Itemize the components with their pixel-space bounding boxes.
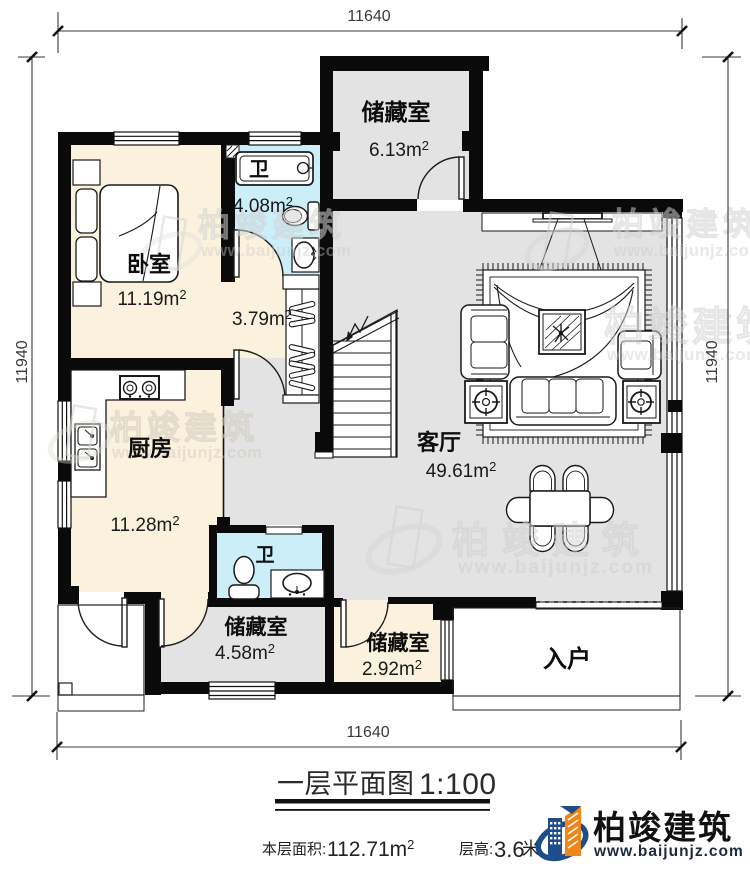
svg-text:11940: 11940 (14, 340, 31, 383)
svg-text:4.58m2: 4.58m2 (215, 641, 275, 664)
svg-text:2.92m2: 2.92m2 (362, 657, 422, 680)
svg-text:卧室: 卧室 (127, 252, 171, 277)
svg-text:11640: 11640 (346, 724, 389, 741)
svg-text:本层面积:: 本层面积: (262, 841, 326, 858)
svg-text:客厅: 客厅 (417, 430, 461, 455)
svg-text:11.28m2: 11.28m2 (110, 513, 179, 536)
svg-text:1:100: 1:100 (419, 768, 497, 801)
svg-text:www.baijunjz.com: www.baijunjz.com (593, 843, 744, 860)
svg-text:厨房: 厨房 (128, 436, 172, 461)
svg-text:www.baijunjz.com: www.baijunjz.com (200, 242, 351, 260)
svg-text:112.71m2: 112.71m2 (327, 837, 414, 861)
svg-text:柏竣建筑: 柏竣建筑 (612, 206, 750, 242)
svg-text:柏竣建筑: 柏竣建筑 (452, 519, 652, 561)
svg-text:www.baijunjz.com: www.baijunjz.com (457, 557, 654, 578)
svg-text:49.61m2: 49.61m2 (426, 459, 497, 482)
svg-text:11.19m2: 11.19m2 (117, 287, 186, 310)
svg-text:一层平面图: 一层平面图 (277, 769, 415, 799)
svg-text:11940: 11940 (704, 340, 721, 383)
svg-text:储藏室: 储藏室 (362, 99, 431, 125)
svg-text:6.13m2: 6.13m2 (369, 138, 429, 161)
svg-text:4.08m2: 4.08m2 (233, 194, 293, 217)
svg-text:入户: 入户 (543, 645, 591, 673)
svg-text:卫: 卫 (249, 159, 269, 181)
svg-text:3.79m2: 3.79m2 (232, 307, 292, 330)
svg-text:11640: 11640 (347, 8, 390, 25)
svg-text:卫: 卫 (255, 545, 274, 566)
svg-text:储藏室: 储藏室 (367, 631, 430, 655)
svg-text:3.6: 3.6 (494, 837, 525, 862)
svg-text:www.baijunjz.com: www.baijunjz.com (613, 242, 750, 260)
svg-text:层高:: 层高: (459, 841, 493, 858)
svg-text:柏竣建筑: 柏竣建筑 (593, 809, 733, 846)
svg-text:储藏室: 储藏室 (225, 615, 288, 639)
